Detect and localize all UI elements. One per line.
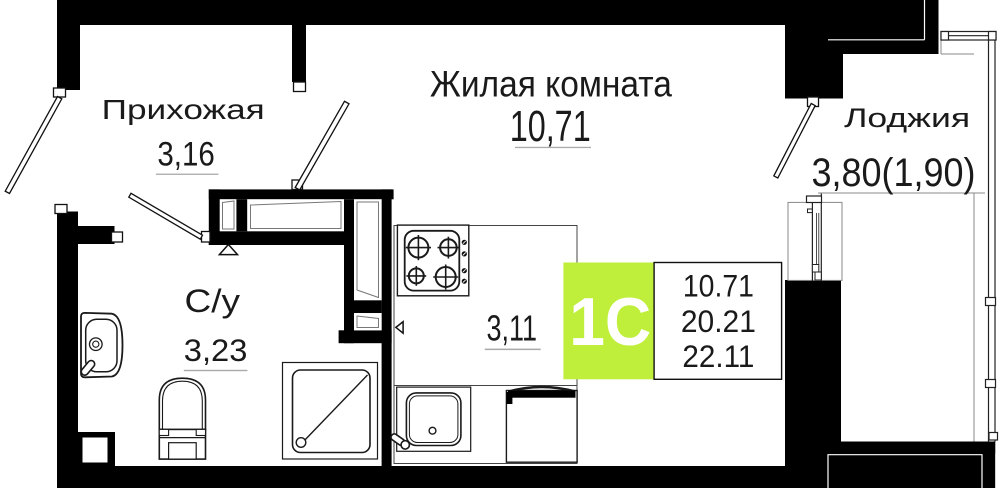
svg-text:С/у: С/у xyxy=(185,283,241,319)
svg-text:Жилая комната: Жилая комната xyxy=(430,62,672,104)
svg-text:3,11: 3,11 xyxy=(487,308,538,349)
svg-text:22.11: 22.11 xyxy=(682,338,754,374)
svg-text:20.21: 20.21 xyxy=(681,303,756,339)
svg-text:Прихожая: Прихожая xyxy=(102,94,265,125)
svg-text:10,71: 10,71 xyxy=(510,102,591,151)
svg-text:Лоджия: Лоджия xyxy=(844,103,970,133)
svg-text:3,80(1,90): 3,80(1,90) xyxy=(812,151,976,195)
svg-text:10.71: 10.71 xyxy=(683,267,754,303)
svg-text:1С: 1С xyxy=(569,284,651,360)
svg-text:3,23: 3,23 xyxy=(184,332,248,368)
svg-text:3,16: 3,16 xyxy=(157,135,214,173)
